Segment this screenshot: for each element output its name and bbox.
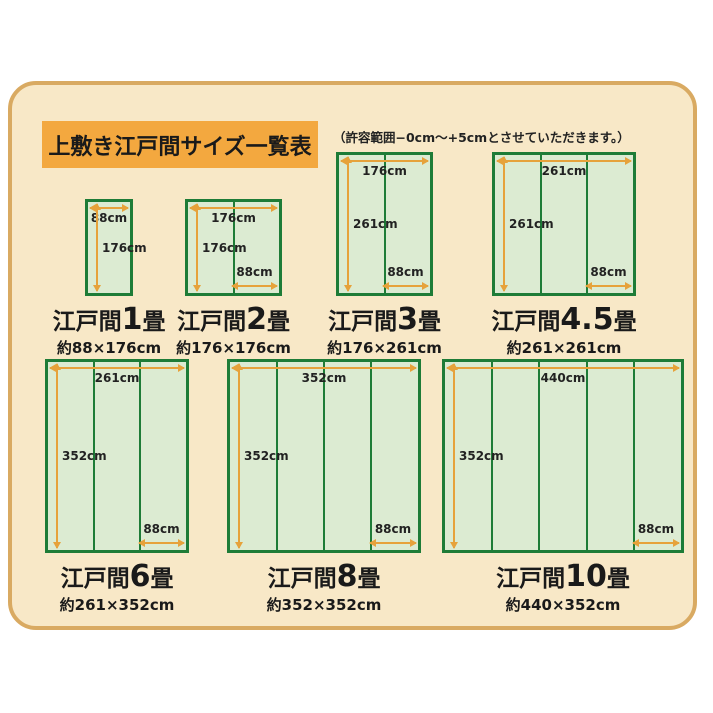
- panel-width-label: 88cm: [383, 266, 428, 278]
- mat-size-text: 約176×176cm: [176, 337, 291, 358]
- panel-width-arrow: [586, 285, 631, 287]
- width-dimension-arrow: [50, 367, 184, 369]
- mat-figure-8jo: 352cm 352cm 88cm 江戸間8畳 約352×352cm: [227, 359, 421, 615]
- panel-divider: [586, 362, 588, 550]
- mat-diagram-10jo: 440cm 352cm 88cm: [442, 359, 684, 553]
- panel-divider: [538, 362, 540, 550]
- chart-title-box: 上敷き江戸間サイズ一覧表: [42, 121, 318, 168]
- mat-figure-6jo: 261cm 352cm 88cm 江戸間6畳 約261×352cm: [45, 359, 189, 615]
- height-dimension-arrow: [96, 204, 98, 291]
- height-dimension-label: 352cm: [62, 450, 107, 462]
- height-dimension-arrow: [503, 157, 505, 291]
- height-dimension-arrow: [238, 364, 240, 548]
- panel-width-arrow: [383, 285, 428, 287]
- width-dimension-label: 261cm: [542, 165, 587, 177]
- height-dimension-label: 352cm: [244, 450, 289, 462]
- chart-title: 上敷き江戸間サイズ一覧表: [48, 129, 311, 161]
- height-dimension-arrow: [453, 364, 455, 548]
- width-dimension-arrow: [232, 367, 416, 369]
- panel-width-label: 88cm: [370, 523, 416, 535]
- mat-size-text: 約88×176cm: [57, 337, 161, 358]
- mat-diagram-3jo: 176cm 261cm 88cm: [336, 152, 433, 296]
- width-dimension-label: 352cm: [302, 372, 347, 384]
- tolerance-note: （許容範囲−0cm〜+5cmとさせていただきます。）: [333, 127, 630, 146]
- mat-name: 江戸間8畳: [268, 560, 381, 593]
- height-dimension-label: 176cm: [202, 242, 247, 254]
- mat-diagram-4-5jo: 261cm 261cm 88cm: [492, 152, 636, 296]
- height-dimension-label: 176cm: [102, 242, 147, 254]
- mat-name: 江戸間10畳: [496, 560, 630, 593]
- mat-name: 江戸間4.5畳: [491, 303, 636, 336]
- height-dimension-label: 352cm: [459, 450, 504, 462]
- panel-width-label: 88cm: [633, 523, 679, 535]
- mat-diagram-6jo: 261cm 352cm 88cm: [45, 359, 189, 553]
- width-dimension-arrow: [341, 160, 428, 162]
- panel-width-label: 88cm: [586, 266, 631, 278]
- mat-name: 江戸間3畳: [328, 303, 441, 336]
- panel-width-label: 88cm: [232, 266, 277, 278]
- mat-size-text: 約261×261cm: [507, 337, 622, 358]
- height-dimension-arrow: [347, 157, 349, 291]
- height-dimension-label: 261cm: [509, 218, 554, 230]
- height-dimension-arrow: [196, 204, 198, 291]
- panel-divider: [370, 362, 372, 550]
- panel-width-arrow: [633, 542, 679, 544]
- width-dimension-label: 261cm: [95, 372, 140, 384]
- width-dimension-arrow: [497, 160, 631, 162]
- panel-width-label: 88cm: [139, 523, 184, 535]
- height-dimension-arrow: [56, 364, 58, 548]
- mat-diagram-8jo: 352cm 352cm 88cm: [227, 359, 421, 553]
- mat-figure-2jo: 176cm 176cm 88cm 江戸間2畳 約176×176cm: [185, 199, 282, 358]
- mat-size-text: 約352×352cm: [267, 594, 382, 615]
- size-chart-image: 上敷き江戸間サイズ一覧表 （許容範囲−0cm〜+5cmとさせていただきます。） …: [0, 0, 713, 713]
- panel-width-arrow: [370, 542, 416, 544]
- mat-name: 江戸間2畳: [177, 303, 290, 336]
- mat-figure-1jo: 88cm 176cm 江戸間1畳 約88×176cm: [85, 199, 133, 358]
- mat-size-text: 約261×352cm: [60, 594, 175, 615]
- width-dimension-label: 176cm: [362, 165, 407, 177]
- height-dimension-label: 261cm: [353, 218, 398, 230]
- mat-figure-3jo: 176cm 261cm 88cm 江戸間3畳 約176×261cm: [336, 152, 433, 358]
- panel-divider: [633, 362, 635, 550]
- mat-diagram-1jo: 88cm 176cm: [85, 199, 133, 296]
- panel-width-arrow: [232, 285, 277, 287]
- mat-figure-10jo: 440cm 352cm 88cm 江戸間10畳 約440×352cm: [442, 359, 684, 615]
- mat-name: 江戸間6畳: [61, 560, 174, 593]
- width-dimension-label: 176cm: [211, 212, 256, 224]
- mat-size-text: 約176×261cm: [327, 337, 442, 358]
- width-dimension-label: 440cm: [541, 372, 586, 384]
- mat-name: 江戸間1畳: [53, 303, 166, 336]
- mat-size-text: 約440×352cm: [506, 594, 621, 615]
- panel-width-arrow: [139, 542, 184, 544]
- width-dimension-arrow: [190, 207, 277, 209]
- width-dimension-arrow: [447, 367, 679, 369]
- mat-figure-4-5jo: 261cm 261cm 88cm 江戸間4.5畳 約261×261cm: [492, 152, 636, 358]
- panel-divider: [139, 362, 141, 550]
- panel-divider: [323, 362, 325, 550]
- mat-diagram-2jo: 176cm 176cm 88cm: [185, 199, 282, 296]
